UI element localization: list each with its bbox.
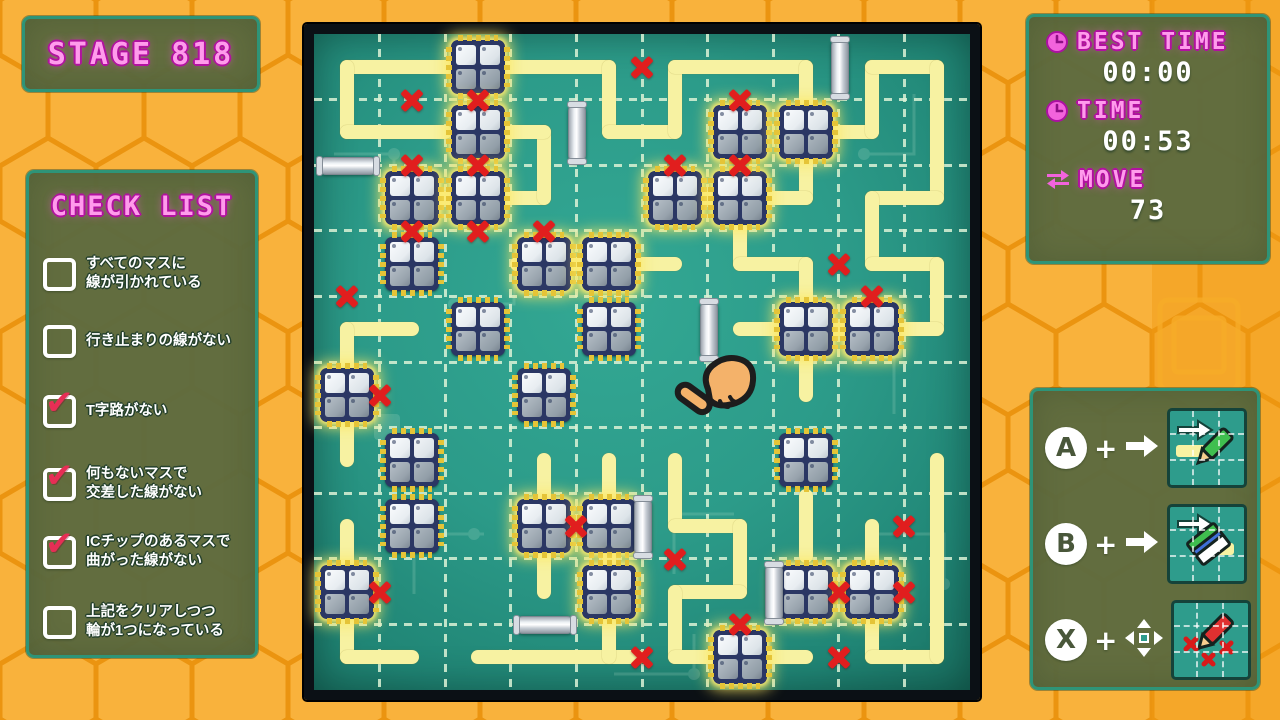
capsule-component (318, 157, 378, 175)
move-value: 73 (1029, 195, 1267, 226)
ic-chip (582, 565, 636, 619)
x-mark (367, 579, 393, 605)
checked-checkbox (43, 395, 76, 428)
stage-number: 818 (171, 37, 234, 72)
time-row: TIME (1045, 98, 1267, 124)
hand-cursor[interactable] (668, 345, 760, 423)
time-label: TIME (1077, 98, 1144, 124)
draw-line-icon (1167, 408, 1247, 488)
drawn-wire (668, 60, 813, 74)
best-time-row: BEST TIME (1045, 29, 1267, 55)
drawn-wire (930, 453, 944, 664)
x-mark (891, 579, 917, 605)
ic-chip (779, 105, 833, 159)
checklist-item-label: 上記をクリアしつつ 輪が1つになっている (86, 603, 224, 641)
x-mark (662, 152, 688, 178)
x-mark (629, 644, 655, 670)
right-arrow-icon (1124, 529, 1160, 559)
mark-x-icon (1171, 600, 1251, 680)
x-mark (826, 251, 852, 277)
ic-chip (582, 237, 636, 291)
ic-chip (385, 499, 439, 553)
erase-line-icon (1167, 504, 1247, 584)
checklist-panel: CHECK LIST すべてのマスに 線が引かれている行き止まりの線がないT字路… (26, 170, 258, 658)
checklist-item-label: すべてのマスに 線が引かれている (86, 255, 202, 293)
gamepad-button-b: B (1045, 523, 1087, 565)
gamepad-button-x: X (1045, 619, 1087, 661)
x-mark (826, 579, 852, 605)
best-time-value: 00:00 (1029, 57, 1267, 88)
plus-sign: + (1094, 432, 1117, 465)
right-arrow-icon (1124, 433, 1160, 463)
four-way-arrow-icon (1124, 618, 1164, 662)
checked-checkbox (43, 468, 76, 501)
controls-panel: A+B+X+ (1030, 388, 1260, 690)
x-mark (891, 513, 917, 539)
x-mark (662, 546, 688, 572)
drawn-wire (471, 650, 646, 664)
ic-chip (517, 368, 571, 422)
unchecked-checkbox (43, 606, 76, 639)
ic-chip (517, 237, 571, 291)
x-mark (826, 644, 852, 670)
plus-sign: + (1094, 528, 1117, 561)
x-mark (629, 54, 655, 80)
stage-panel: STAGE 818 (22, 16, 260, 92)
ic-chip (385, 237, 439, 291)
ic-chip (779, 433, 833, 487)
capsule-component (568, 103, 586, 163)
time-value: 00:53 (1029, 126, 1267, 157)
ic-chip (779, 302, 833, 356)
ic-chip (713, 630, 767, 684)
ic-chip (451, 302, 505, 356)
move-row: MOVE (1045, 167, 1267, 193)
checklist-item: すべてのマスに 線が引かれている (43, 255, 202, 293)
drawn-wire (930, 60, 944, 205)
checklist-item-label: ICチップのあるマスで 曲がった線がない (86, 533, 230, 571)
x-mark (859, 283, 885, 309)
clock-icon (1045, 99, 1069, 123)
stats-panel: BEST TIME 00:00 TIME 00:53 MOVE 73 (1026, 14, 1270, 264)
plus-sign: + (1094, 624, 1117, 657)
x-mark (465, 218, 491, 244)
x-mark (334, 283, 360, 309)
x-mark (727, 152, 753, 178)
capsule-component (831, 38, 849, 98)
swap-arrows-icon (1045, 169, 1071, 191)
ic-chip (648, 171, 702, 225)
clock-icon (1045, 30, 1069, 54)
x-mark (399, 218, 425, 244)
ic-chip (845, 302, 899, 356)
x-mark (465, 87, 491, 113)
drawn-wire (340, 650, 420, 664)
ic-chip (385, 433, 439, 487)
checklist-item: 行き止まりの線がない (43, 325, 231, 358)
move-label: MOVE (1079, 167, 1146, 193)
control-hint-erase-line: B+ (1045, 501, 1245, 587)
x-mark (531, 218, 557, 244)
control-hint-draw-line: A+ (1045, 405, 1245, 491)
gamepad-button-a: A (1045, 427, 1087, 469)
checklist-title: CHECK LIST (29, 191, 255, 222)
checklist-item-label: 何もないマスで 交差した線がない (86, 465, 202, 503)
checklist-item: 何もないマスで 交差した線がない (43, 465, 202, 503)
drawn-wire (799, 489, 813, 562)
puzzle-board[interactable] (304, 24, 980, 700)
best-time-label: BEST TIME (1077, 29, 1229, 55)
capsule-component (515, 616, 575, 634)
unchecked-checkbox (43, 258, 76, 291)
checklist-item: 上記をクリアしつつ 輪が1つになっている (43, 603, 224, 641)
checklist-item-label: 行き止まりの線がない (86, 332, 231, 351)
ic-chip (582, 302, 636, 356)
checklist-item: T字路がない (43, 395, 167, 428)
stage-label: STAGE (48, 37, 153, 72)
unchecked-checkbox (43, 325, 76, 358)
x-mark (399, 87, 425, 113)
x-mark (727, 611, 753, 637)
x-mark (563, 513, 589, 539)
board-grid (314, 34, 970, 690)
x-mark (727, 87, 753, 113)
drawn-wire (340, 125, 452, 139)
x-mark (367, 382, 393, 408)
x-mark (465, 152, 491, 178)
checklist-item-label: T字路がない (86, 402, 167, 421)
ic-chip (713, 171, 767, 225)
checked-checkbox (43, 536, 76, 569)
checklist-item: ICチップのあるマスで 曲がった線がない (43, 533, 230, 571)
ic-chip (582, 499, 636, 553)
capsule-component (765, 563, 783, 623)
control-hint-mark-x: X+ (1045, 597, 1245, 683)
capsule-component (634, 497, 652, 557)
x-mark (399, 152, 425, 178)
